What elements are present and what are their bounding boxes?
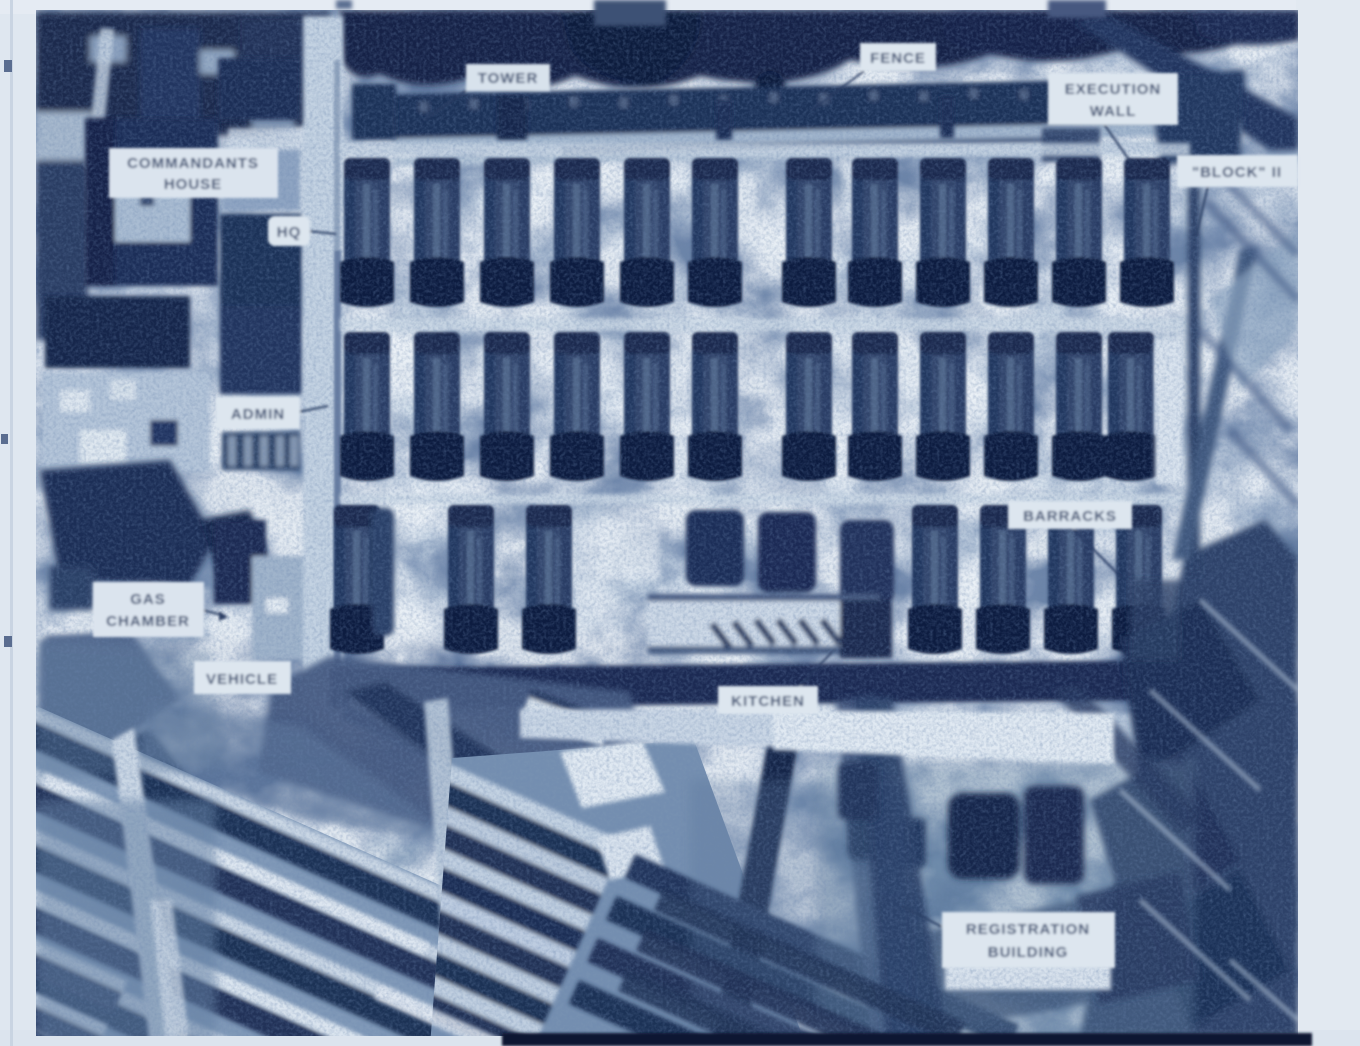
svg-text:WALL: WALL <box>1090 103 1137 120</box>
svg-text:CHAMBER: CHAMBER <box>106 613 190 630</box>
svg-text:HOUSE: HOUSE <box>164 176 222 193</box>
svg-text:FENCE: FENCE <box>870 50 926 67</box>
svg-text:HQ: HQ <box>277 224 302 241</box>
svg-text:GAS: GAS <box>130 591 166 608</box>
svg-text:REGISTRATION: REGISTRATION <box>966 921 1090 938</box>
svg-text:KITCHEN: KITCHEN <box>731 693 805 710</box>
svg-text:BUILDING: BUILDING <box>988 944 1069 961</box>
svg-text:BARRACKS: BARRACKS <box>1023 508 1117 525</box>
svg-text:"BLOCK" II: "BLOCK" II <box>1192 164 1282 181</box>
svg-text:TOWER: TOWER <box>478 70 539 87</box>
svg-text:EXECUTION: EXECUTION <box>1065 81 1162 98</box>
svg-text:ADMIN: ADMIN <box>231 406 285 423</box>
svg-text:VEHICLE: VEHICLE <box>206 671 278 688</box>
svg-text:COMMANDANTS: COMMANDANTS <box>127 155 259 172</box>
